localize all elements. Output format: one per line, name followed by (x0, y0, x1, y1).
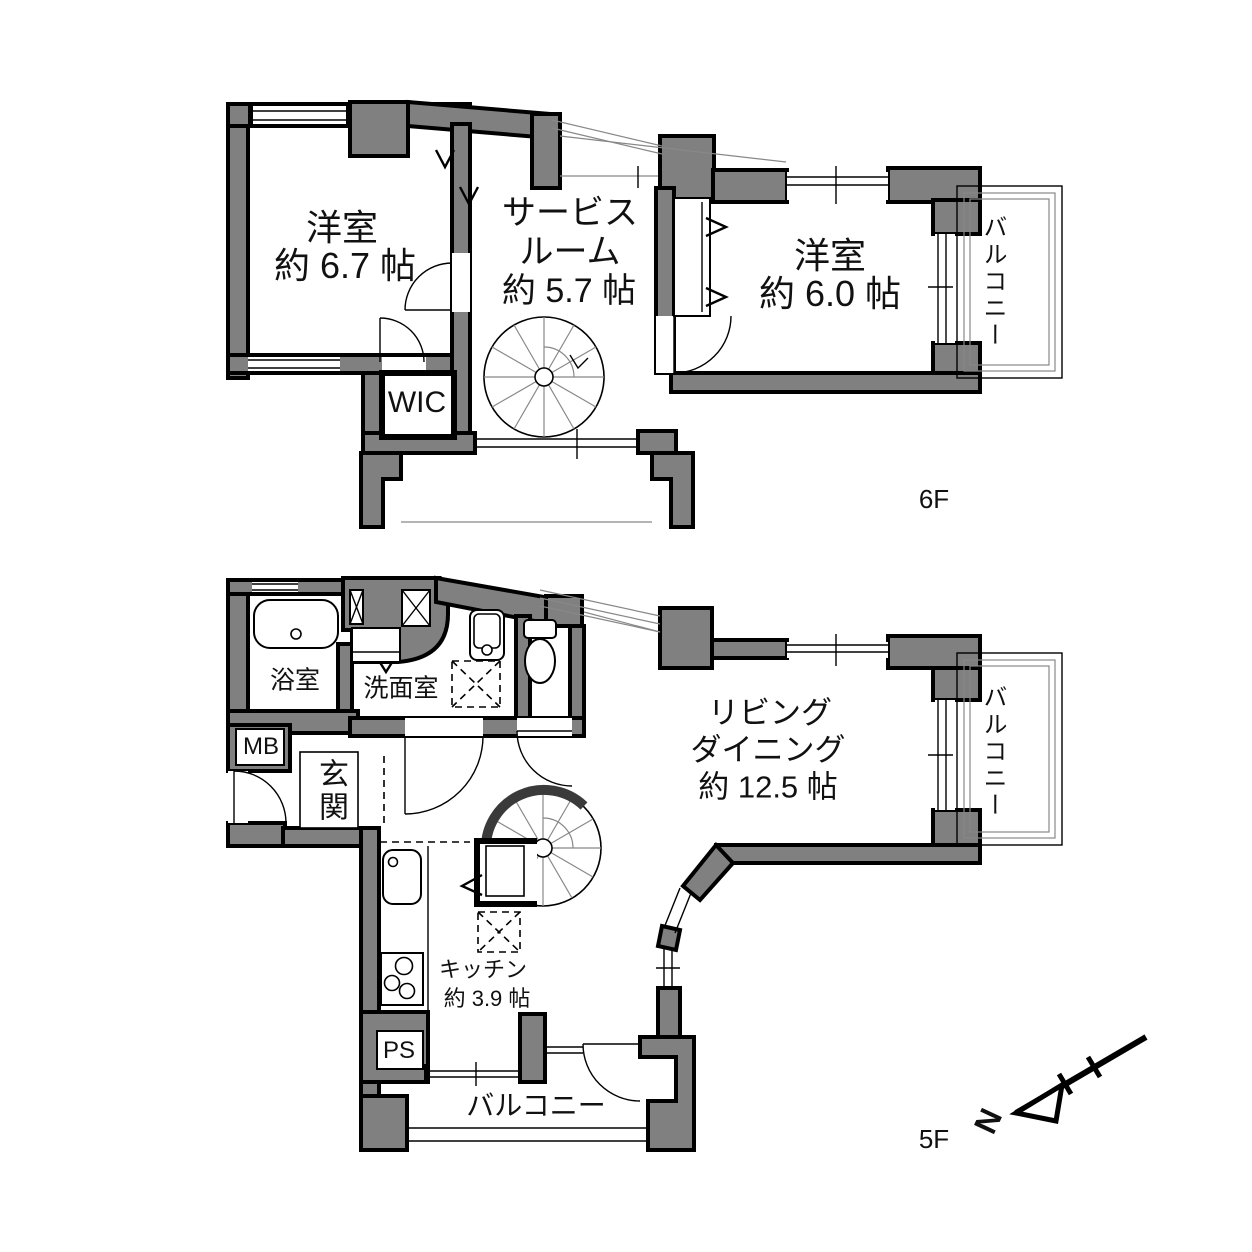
label-6f-service-room-size: 約 5.7 帖 (502, 274, 636, 308)
label-5f-balcony-east: バルコニー (980, 685, 1004, 820)
5f-spiral-stair (462, 790, 601, 906)
6f-closet (674, 198, 726, 316)
label-6f-balcony-east: バルコニー (980, 215, 1004, 350)
label-5f-pipe-space: PS (383, 1039, 415, 1063)
label-6f-bedroom-east-name: 洋室 (794, 238, 866, 274)
label-6f-service-room-line2: ルーム (520, 235, 621, 269)
6f-spiral-stair (484, 317, 604, 437)
label-floor-5f: 5F (919, 1126, 949, 1152)
5f-walls (228, 578, 980, 1150)
label-5f-kitchen-name: キッチン (439, 959, 527, 981)
label-6f-service-room-line1: サービス (502, 196, 638, 230)
6f-walls (228, 102, 980, 527)
compass-north-icon (1016, 1037, 1146, 1121)
label-floor-6f: 6F (919, 486, 949, 512)
label-5f-bathroom: 浴室 (270, 669, 320, 694)
floorplan-page: 洋室 約 6.7 帖 サービス ルーム 約 5.7 帖 洋室 約 6.0 帖 W… (0, 0, 1252, 1252)
floorplan-drawing (0, 0, 1252, 1252)
label-6f-wic: WIC (388, 388, 446, 418)
label-5f-kitchen-size: 約 3.9 帖 (444, 988, 531, 1010)
label-6f-bedroom-east-size: 約 6.0 帖 (759, 276, 901, 312)
label-6f-bedroom-west-size: 約 6.7 帖 (274, 248, 416, 284)
label-5f-living-line2: ダイニング (691, 735, 846, 766)
label-5f-washroom: 洗面室 (363, 677, 438, 702)
label-5f-balcony-south: バルコニー (466, 1092, 605, 1120)
label-5f-living-size: 約 12.5 帖 (698, 772, 838, 803)
label-5f-meter-box: MB (243, 735, 279, 759)
label-5f-entrance: 玄関 (315, 758, 345, 824)
label-5f-living-line1: リビング (708, 698, 832, 729)
label-6f-bedroom-west-name: 洋室 (306, 210, 378, 246)
